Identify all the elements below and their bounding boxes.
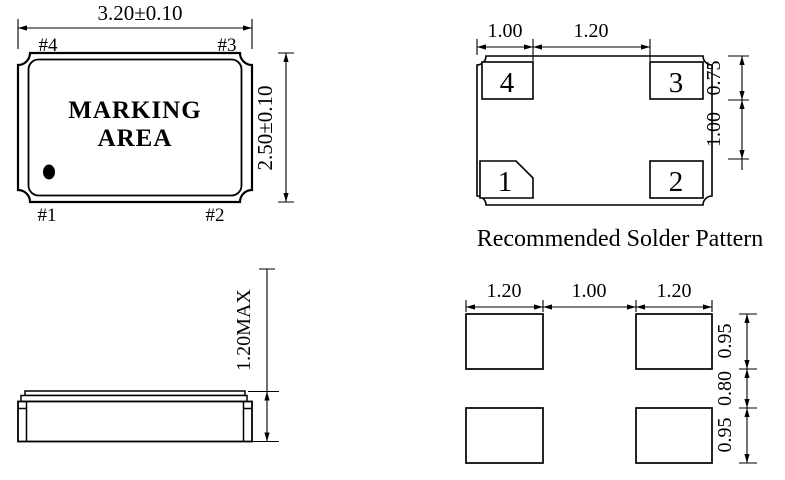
dim-pad-gap-label: 1.20 (574, 20, 609, 42)
solder-pad-bottom-left (466, 408, 543, 463)
dim-solder-top-height-label: 0.95 (714, 324, 736, 359)
dim-solder-left-width-label: 1.20 (487, 280, 522, 302)
dim-solder-right-width-label: 1.20 (657, 280, 692, 302)
solder-pad-top-left (466, 314, 543, 369)
land-pattern-view: 4 3 1 2 1.00 1.20 0.75 1.00 Recommended … (477, 20, 764, 252)
pad-number-3: 3 (669, 67, 684, 99)
pin-label-4: #4 (39, 35, 59, 56)
marking-area-line1: MARKING (68, 97, 201, 124)
solder-pattern-view: 1.20 1.00 1.20 0.95 0.80 0.95 (466, 280, 757, 463)
dim-pad-width-label: 1.00 (488, 20, 523, 42)
top-view: MARKING AREA #4 #3 #1 #2 3.20±0.10 2.50±… (18, 1, 294, 226)
dim-solder-widths: 1.20 1.00 1.20 (466, 280, 712, 312)
pin-label-3: #3 (218, 35, 237, 56)
solder-pad-bottom-right (636, 408, 712, 463)
dim-pad-height-label: 0.75 (703, 61, 725, 96)
dim-pad-height-and-row-gap: 0.75 1.00 (703, 56, 749, 170)
dim-solder-row-gap-label: 0.80 (714, 371, 736, 406)
marking-area-line2: AREA (98, 125, 173, 152)
dim-solder-col-gap-label: 1.00 (572, 280, 607, 302)
pin-label-1: #1 (38, 205, 57, 226)
solder-pattern-caption: Recommended Solder Pattern (477, 226, 764, 252)
solder-pad-top-right (636, 314, 712, 369)
dim-solder-bottom-height-label: 0.95 (714, 418, 736, 453)
pad-number-4: 4 (500, 67, 515, 99)
pin1-indicator-dot (43, 165, 55, 180)
dim-body-height: 2.50±0.10 (253, 53, 294, 202)
dim-solder-heights: 0.95 0.80 0.95 (714, 314, 757, 463)
side-view: 1.20MAX (18, 269, 279, 442)
dim-body-height-label: 2.50±0.10 (253, 85, 277, 170)
dim-max-height-label: 1.20MAX (233, 289, 255, 371)
pad-number-1: 1 (498, 166, 513, 198)
technical-drawing-svg: MARKING AREA #4 #3 #1 #2 3.20±0.10 2.50±… (0, 0, 785, 475)
datasheet-drawing-page: MARKING AREA #4 #3 #1 #2 3.20±0.10 2.50±… (0, 0, 785, 475)
pad-number-2: 2 (669, 166, 684, 198)
dim-row-gap-label: 1.00 (703, 112, 725, 147)
side-view-body (18, 402, 252, 442)
dim-body-width-label: 3.20±0.10 (97, 1, 182, 25)
dim-pad-width-and-gap: 1.00 1.20 (477, 20, 650, 61)
pin-label-2: #2 (206, 205, 225, 226)
